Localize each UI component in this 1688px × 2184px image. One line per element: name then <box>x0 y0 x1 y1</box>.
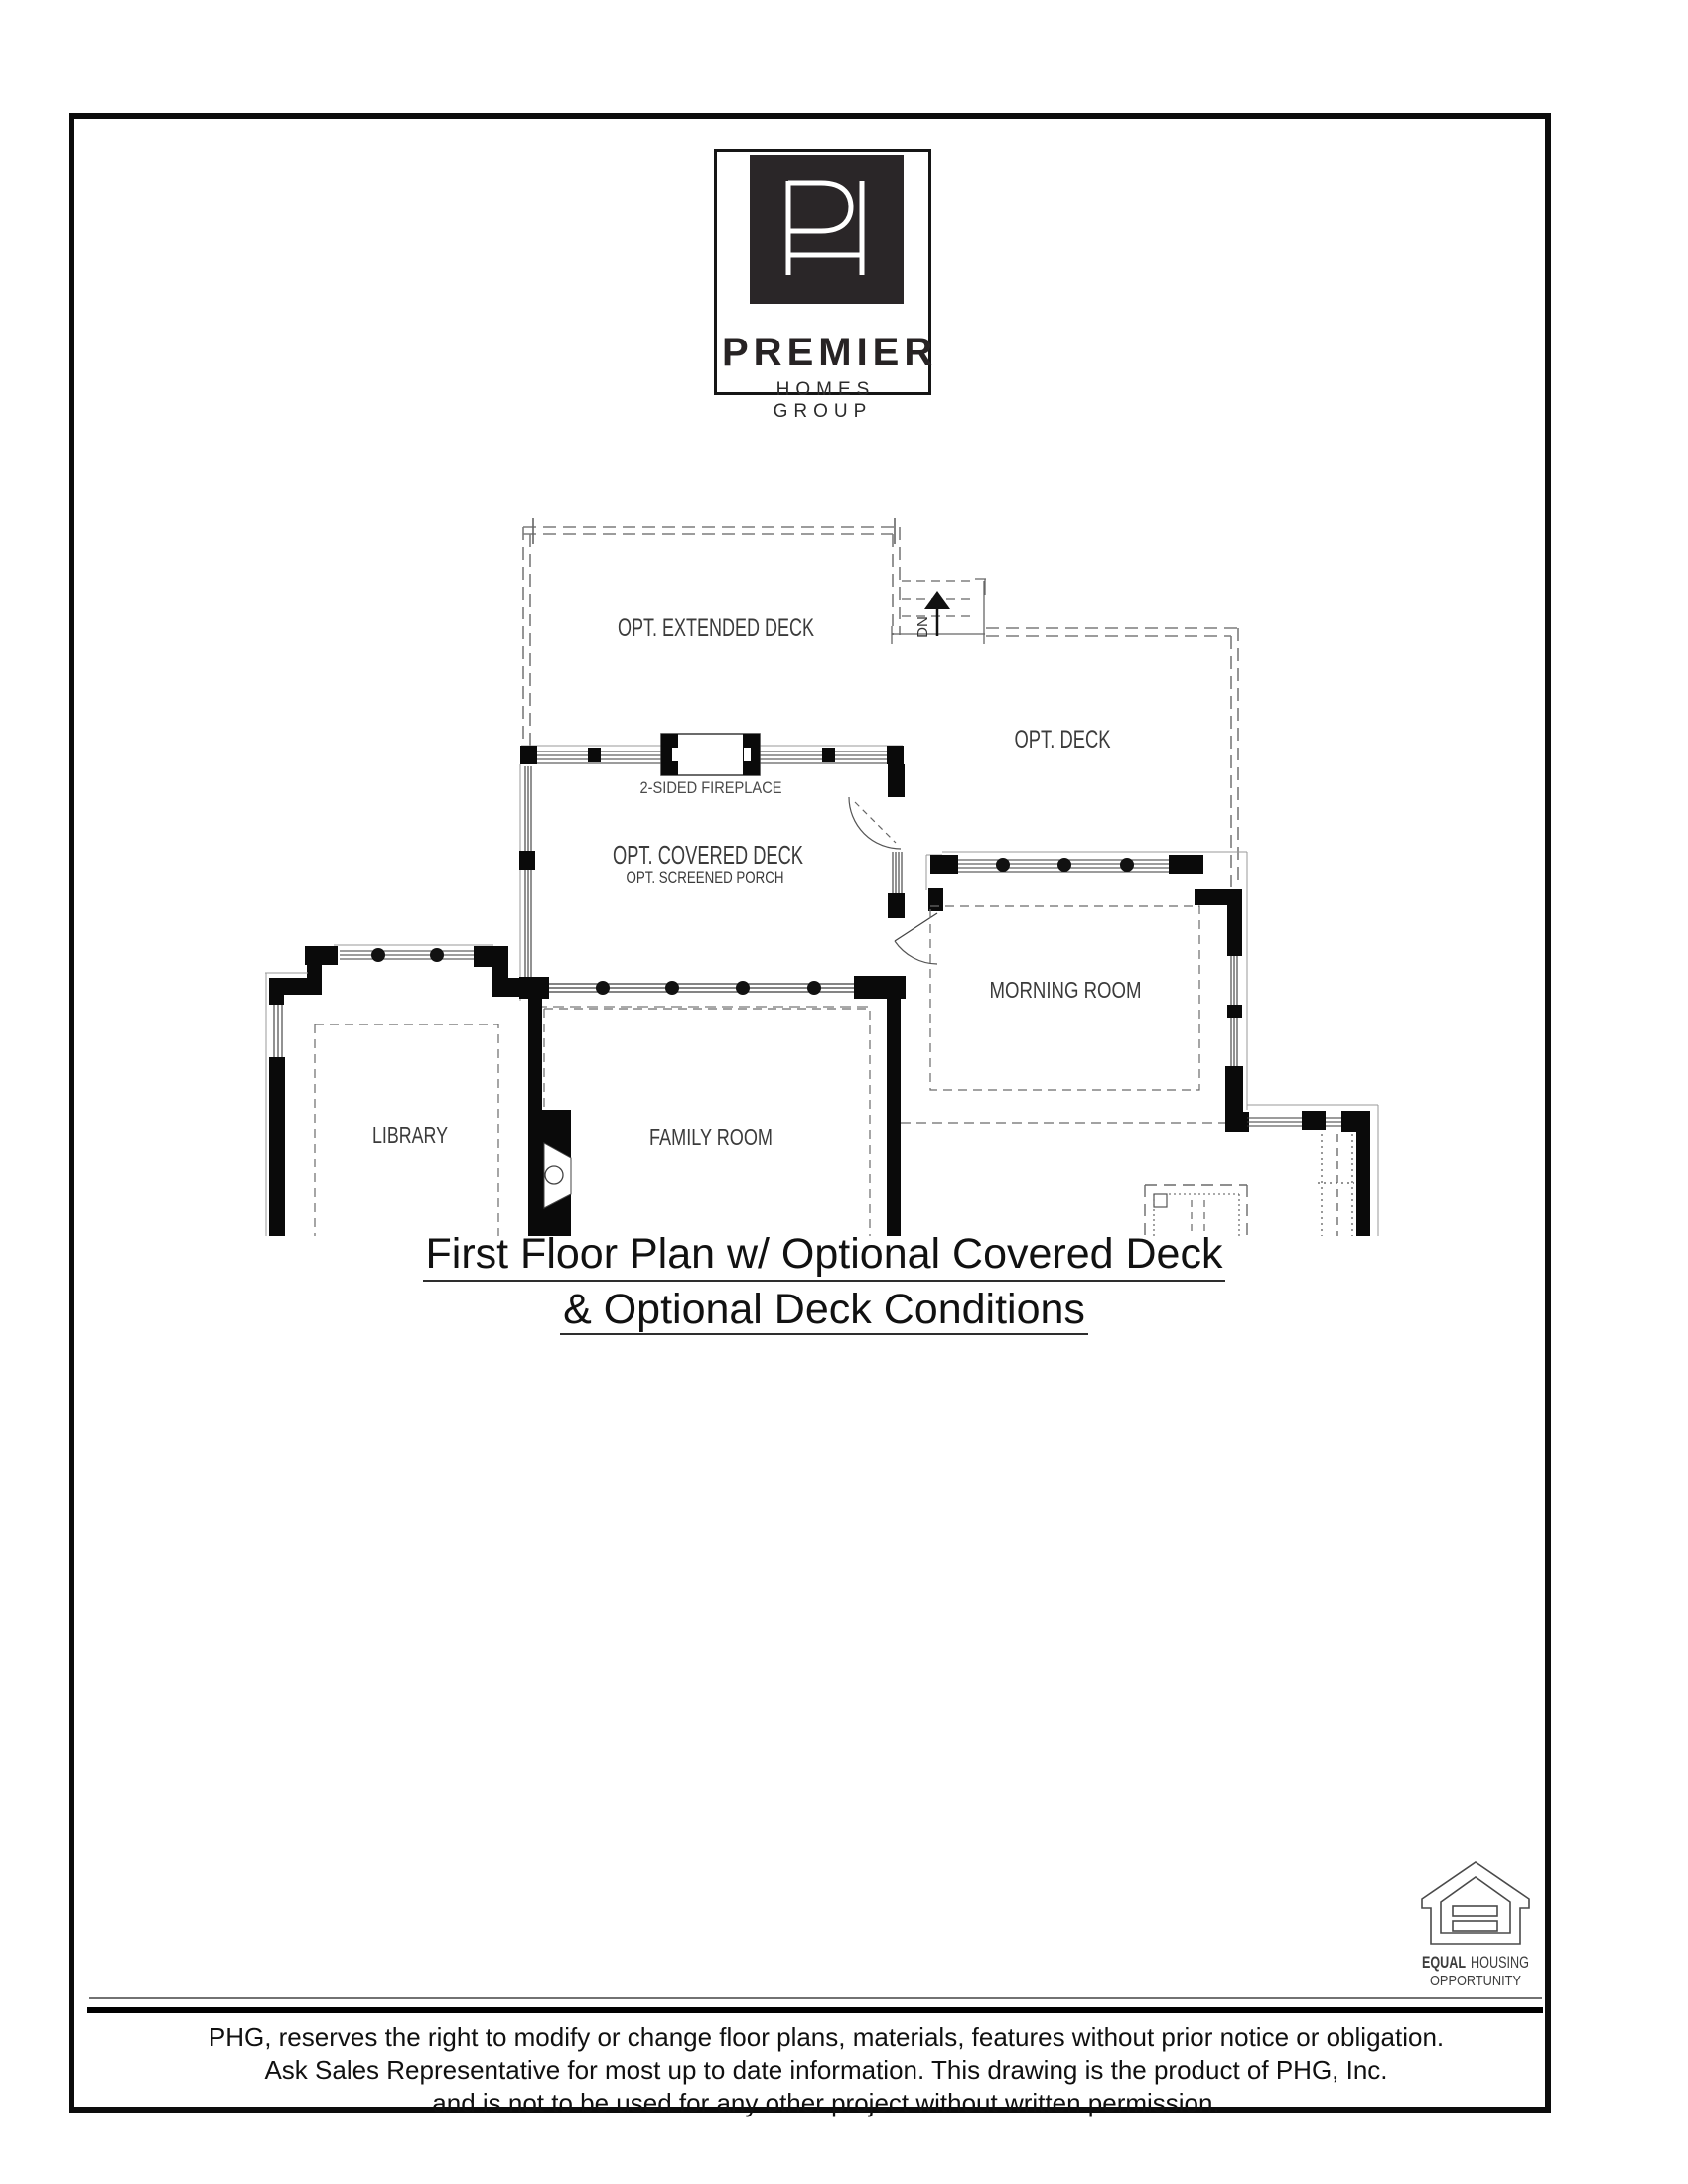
label-opt-covered-deck: OPT. COVERED DECK <box>613 840 803 870</box>
covered-deck-left-wall <box>519 764 535 1001</box>
media-niche <box>528 995 571 1236</box>
title-line1: First Floor Plan w/ Optional Covered Dec… <box>423 1229 1226 1282</box>
label-opt-deck: OPT. DECK <box>1015 726 1111 753</box>
equal-housing-word-opportunity: OPPORTUNITY <box>1430 1973 1521 1989</box>
family-room-tray-ceiling <box>544 1009 870 1236</box>
stair-arrow-icon <box>924 591 950 609</box>
porch-rail-wall <box>519 976 906 1007</box>
label-family-room: FAMILY ROOM <box>649 1124 773 1150</box>
drawing-title: First Floor Plan w/ Optional Covered Dec… <box>0 1229 1648 1335</box>
right-wing-walls <box>1225 1105 1378 1236</box>
library-walls <box>265 945 542 1236</box>
label-opt-extended-deck: OPT. EXTENDED DECK <box>618 614 814 642</box>
label-morning-room: MORNING ROOM <box>990 977 1142 1003</box>
deck-stairs <box>892 579 986 644</box>
disclaimer-line3: and is not to be used for any other proj… <box>2 2087 1650 2119</box>
equal-housing-word-housing: HOUSING <box>1471 1953 1529 1972</box>
door-swing-arc <box>849 797 901 849</box>
stair-dn-label: DN <box>914 616 931 638</box>
disclaimer: PHG, reserves the right to modify or cha… <box>2 2021 1650 2119</box>
opt-deck-outline <box>986 628 1238 887</box>
footer-rules <box>87 1998 1543 2010</box>
title-line2: & Optional Deck Conditions <box>560 1287 1088 1335</box>
equal-housing-word-equal: EQUAL <box>1422 1953 1466 1972</box>
floor-plan-drawing: DN <box>0 0 1688 2184</box>
label-library: LIBRARY <box>372 1122 448 1148</box>
label-opt-screened-porch: OPT. SCREENED PORCH <box>627 868 784 887</box>
equal-housing-icon <box>1422 1862 1529 1944</box>
page: PREMIER HOMES GROUP DN <box>0 0 1688 2184</box>
disclaimer-line2: Ask Sales Representative for most up to … <box>2 2054 1650 2087</box>
label-2-sided-fireplace: 2-SIDED FIREPLACE <box>640 779 782 797</box>
covered-deck-right-wall <box>849 764 937 964</box>
rear-wall-fireplace <box>520 734 904 775</box>
family-room-walls <box>544 993 901 1236</box>
disclaimer-line1: PHG, reserves the right to modify or cha… <box>2 2021 1650 2054</box>
